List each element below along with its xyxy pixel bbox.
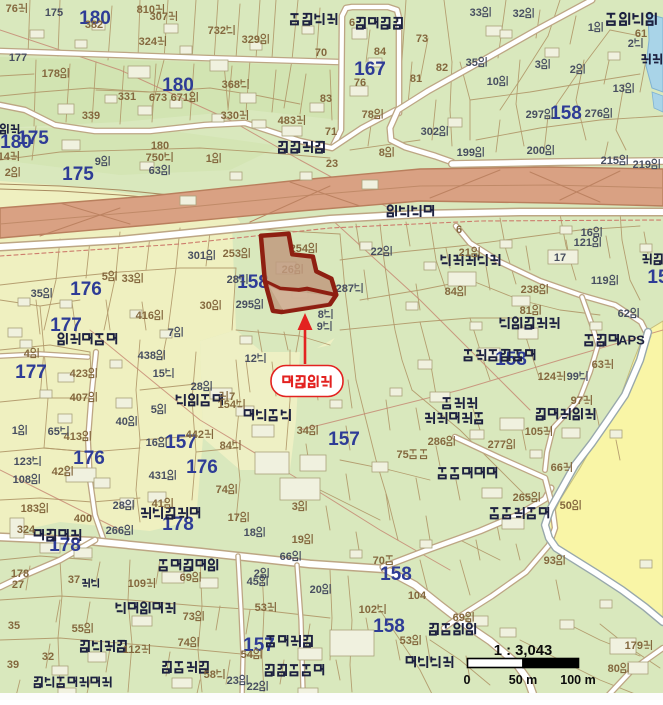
svg-text:35: 35 — [8, 620, 20, 632]
svg-text:100 m: 100 m — [560, 673, 595, 687]
svg-text:177: 177 — [9, 52, 27, 64]
svg-text:732: 732 — [208, 25, 226, 37]
svg-text:9: 9 — [95, 156, 101, 168]
svg-text:382: 382 — [85, 19, 103, 31]
svg-text:750: 750 — [146, 152, 164, 164]
svg-text:12: 12 — [245, 353, 257, 365]
svg-text:368: 368 — [222, 79, 240, 91]
svg-text:178: 178 — [42, 68, 60, 80]
svg-text:158: 158 — [495, 349, 527, 370]
svg-text:97: 97 — [571, 395, 583, 407]
svg-text:5: 5 — [151, 404, 157, 416]
svg-text:287: 287 — [336, 283, 354, 295]
svg-text:70: 70 — [373, 555, 385, 567]
svg-text:5: 5 — [102, 271, 108, 283]
svg-text:416: 416 — [136, 310, 154, 322]
svg-text:200: 200 — [527, 145, 545, 157]
svg-text:286: 286 — [428, 436, 446, 448]
svg-text:158: 158 — [550, 103, 582, 124]
svg-text:2: 2 — [5, 167, 11, 179]
svg-text:276: 276 — [585, 108, 603, 120]
svg-text:158: 158 — [373, 616, 405, 637]
svg-text:75: 75 — [396, 449, 408, 461]
svg-text:7: 7 — [168, 327, 174, 339]
svg-text:6: 6 — [349, 17, 355, 29]
svg-text:104: 104 — [408, 590, 427, 602]
svg-text:40: 40 — [116, 416, 128, 428]
svg-text:154: 154 — [218, 399, 237, 411]
svg-text:93: 93 — [544, 555, 556, 567]
svg-text:407: 407 — [70, 392, 88, 404]
svg-text:302: 302 — [421, 126, 439, 138]
svg-text:4: 4 — [24, 348, 31, 360]
svg-text:33: 33 — [122, 273, 134, 285]
svg-text:2: 2 — [570, 64, 576, 76]
svg-text:157: 157 — [328, 429, 360, 450]
svg-text:431: 431 — [149, 470, 167, 482]
svg-text:183: 183 — [21, 503, 39, 515]
svg-text:13: 13 — [613, 83, 625, 95]
svg-text:219: 219 — [633, 159, 651, 171]
svg-text:109: 109 — [128, 578, 146, 590]
svg-text:176: 176 — [73, 448, 105, 469]
svg-text:78: 78 — [362, 109, 374, 121]
svg-text:84: 84 — [374, 46, 387, 58]
svg-text:71: 71 — [325, 126, 337, 138]
svg-text:35: 35 — [31, 288, 43, 300]
svg-text:69: 69 — [180, 572, 192, 584]
svg-text:673: 673 — [149, 92, 167, 104]
svg-text:76: 76 — [6, 3, 18, 15]
svg-text:339: 339 — [82, 110, 100, 122]
svg-text:69: 69 — [453, 612, 465, 624]
svg-text:175: 175 — [62, 164, 94, 185]
svg-text:42: 42 — [52, 466, 64, 478]
svg-text:37: 37 — [68, 574, 80, 586]
svg-text:39: 39 — [7, 659, 19, 671]
svg-text:82: 82 — [436, 62, 448, 74]
svg-text:28: 28 — [227, 274, 239, 286]
svg-text:33: 33 — [470, 7, 482, 19]
svg-text:1: 1 — [12, 425, 18, 437]
svg-text:121: 121 — [574, 237, 592, 249]
svg-text:301: 301 — [188, 250, 206, 262]
svg-text:438: 438 — [138, 350, 156, 362]
svg-text:54: 54 — [241, 649, 254, 661]
svg-text:253: 253 — [223, 248, 241, 260]
svg-text:176: 176 — [186, 457, 218, 478]
svg-text:177: 177 — [15, 362, 47, 383]
svg-text:180: 180 — [151, 140, 169, 152]
svg-text:8: 8 — [379, 147, 385, 159]
svg-text:307: 307 — [150, 11, 168, 23]
svg-text:81: 81 — [410, 73, 422, 85]
svg-text:119: 119 — [591, 275, 609, 287]
svg-text:53: 53 — [400, 635, 412, 647]
svg-text:277: 277 — [488, 439, 506, 451]
svg-text:177: 177 — [50, 315, 82, 336]
svg-text:179: 179 — [625, 640, 643, 652]
svg-text:80: 80 — [608, 663, 620, 675]
svg-text:324: 324 — [17, 524, 36, 536]
svg-text:20: 20 — [310, 584, 322, 596]
svg-text:483: 483 — [278, 115, 296, 127]
svg-text:17: 17 — [228, 512, 240, 524]
svg-text:74: 74 — [178, 637, 191, 649]
svg-text:23: 23 — [326, 158, 338, 170]
svg-text:19: 19 — [292, 534, 304, 546]
svg-text:73: 73 — [183, 611, 195, 623]
svg-text:329: 329 — [242, 34, 260, 46]
svg-text:27: 27 — [12, 579, 24, 591]
svg-text:123: 123 — [14, 456, 32, 468]
svg-text:45: 45 — [247, 576, 259, 588]
svg-text:76: 76 — [354, 77, 366, 89]
svg-text:108: 108 — [13, 474, 31, 486]
svg-text:266: 266 — [106, 525, 124, 537]
svg-text:2: 2 — [628, 38, 634, 50]
svg-text:APS: APS — [618, 333, 645, 348]
svg-text:65: 65 — [48, 426, 60, 438]
svg-text:324: 324 — [139, 36, 158, 48]
svg-text:22: 22 — [371, 246, 383, 258]
svg-text:15: 15 — [153, 368, 165, 380]
svg-text:34: 34 — [297, 425, 310, 437]
svg-text:3: 3 — [292, 501, 298, 513]
svg-text:50: 50 — [560, 500, 572, 512]
svg-text:55: 55 — [72, 623, 84, 635]
svg-text:81: 81 — [520, 305, 532, 317]
svg-text:61: 61 — [635, 28, 647, 40]
svg-text:83: 83 — [320, 93, 332, 105]
svg-text:102: 102 — [359, 604, 377, 616]
svg-text:1: 1 — [206, 153, 212, 165]
svg-text:58: 58 — [204, 669, 216, 681]
svg-text:199: 199 — [457, 147, 475, 159]
svg-text:14: 14 — [0, 151, 11, 163]
svg-text:297: 297 — [526, 109, 544, 121]
svg-text:16: 16 — [146, 437, 158, 449]
svg-text:400: 400 — [74, 513, 92, 525]
svg-text:158: 158 — [380, 564, 412, 585]
svg-text:66: 66 — [280, 551, 292, 563]
svg-text:124: 124 — [538, 371, 557, 383]
svg-text:105: 105 — [525, 426, 543, 438]
svg-text:66: 66 — [551, 462, 563, 474]
svg-text:331: 331 — [118, 91, 136, 103]
svg-text:0: 0 — [464, 673, 471, 687]
svg-text:32: 32 — [513, 8, 525, 20]
svg-text:53: 53 — [255, 602, 267, 614]
svg-text:41: 41 — [152, 498, 164, 510]
svg-text:70: 70 — [315, 47, 327, 59]
svg-text:22: 22 — [247, 681, 259, 693]
svg-text:215: 215 — [601, 155, 619, 167]
svg-text:238: 238 — [521, 284, 539, 296]
svg-text:1 : 3,043: 1 : 3,043 — [494, 643, 552, 659]
svg-text:17: 17 — [554, 252, 566, 264]
svg-text:99: 99 — [567, 371, 579, 383]
svg-text:63: 63 — [592, 359, 604, 371]
svg-text:175: 175 — [17, 128, 49, 149]
svg-text:671: 671 — [171, 92, 189, 104]
svg-text:413: 413 — [64, 431, 82, 443]
svg-text:176: 176 — [70, 279, 102, 300]
svg-text:62: 62 — [618, 308, 630, 320]
svg-text:23: 23 — [227, 675, 239, 687]
svg-text:265: 265 — [513, 492, 531, 504]
svg-text:423: 423 — [70, 368, 88, 380]
svg-text:330: 330 — [221, 110, 239, 122]
svg-text:74: 74 — [216, 484, 229, 496]
svg-text:8: 8 — [318, 309, 324, 321]
svg-text:442: 442 — [186, 429, 204, 441]
svg-text:15: 15 — [647, 267, 663, 288]
svg-text:18: 18 — [244, 527, 256, 539]
svg-text:73: 73 — [416, 33, 428, 45]
svg-text:175: 175 — [45, 7, 63, 19]
svg-text:32: 32 — [42, 651, 54, 663]
svg-text:50 m: 50 m — [509, 673, 538, 687]
svg-text:63: 63 — [149, 165, 161, 177]
svg-text:28: 28 — [113, 500, 125, 512]
svg-text:10: 10 — [487, 76, 499, 88]
svg-text:84: 84 — [445, 286, 458, 298]
svg-text:1: 1 — [588, 22, 594, 34]
svg-text:112: 112 — [123, 644, 141, 656]
svg-text:21: 21 — [459, 247, 471, 259]
svg-text:3: 3 — [535, 59, 541, 71]
svg-text:84: 84 — [220, 440, 233, 452]
svg-text:9: 9 — [317, 321, 323, 333]
svg-text:28: 28 — [191, 381, 203, 393]
svg-text:295: 295 — [236, 299, 254, 311]
svg-text:6: 6 — [456, 224, 462, 236]
svg-text:30: 30 — [200, 300, 212, 312]
svg-text:35: 35 — [466, 57, 478, 69]
